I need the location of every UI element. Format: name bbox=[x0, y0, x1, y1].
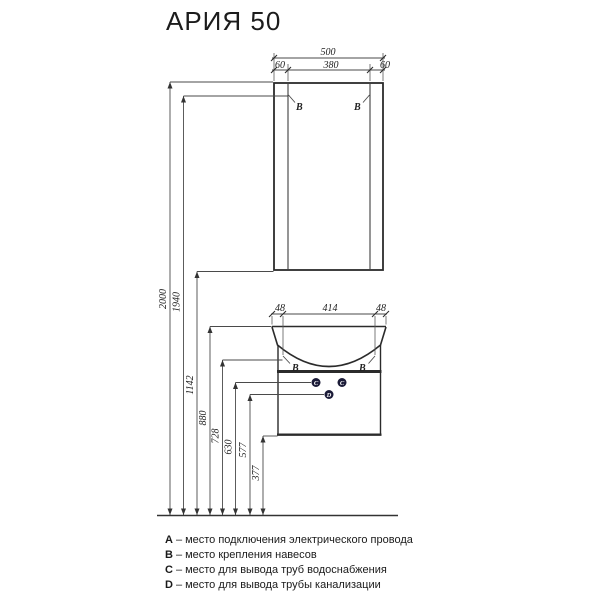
drain-marker-label: D bbox=[326, 392, 332, 399]
dimension-drawing: 500 60 380 60 B B bbox=[0, 0, 600, 600]
water-marker-label: C bbox=[314, 380, 319, 387]
legend-key: A bbox=[165, 534, 173, 546]
mirror-width-dimensions: 500 60 380 60 bbox=[271, 47, 390, 81]
dim-vanity-left: 48 bbox=[275, 303, 285, 314]
legend-item: D–место для вывода трубы канализации bbox=[165, 578, 416, 593]
hanger-marker-label: B bbox=[295, 102, 303, 113]
height-dim-630: 630 bbox=[224, 440, 235, 455]
legend-separator: – bbox=[176, 549, 182, 561]
legend-key: D bbox=[165, 579, 173, 591]
legend-separator: – bbox=[176, 534, 182, 546]
water-marker-label: C bbox=[340, 380, 345, 387]
vanity-width-dimensions: 48 414 48 bbox=[269, 303, 389, 355]
height-dim-1940: 1940 bbox=[172, 292, 183, 312]
legend-separator: – bbox=[176, 579, 182, 591]
legend-item: A–место подключения электрического прово… bbox=[165, 533, 416, 548]
dim-mirror-center: 380 bbox=[323, 60, 339, 71]
hanger-marker-label: B bbox=[353, 102, 361, 113]
height-dim-1142: 1142 bbox=[185, 375, 196, 394]
legend: A–место подключения электрического прово… bbox=[165, 533, 416, 593]
dim-mirror-left: 60 bbox=[275, 60, 285, 71]
legend-separator: – bbox=[176, 564, 182, 576]
legend-label: место для вывода труб водоснабжения bbox=[185, 564, 387, 576]
legend-item: B–место крепления навесов bbox=[165, 548, 416, 563]
dim-vanity-right: 48 bbox=[376, 303, 386, 314]
pipe-markers: C C D bbox=[312, 378, 347, 399]
height-dim-880: 880 bbox=[198, 411, 209, 426]
legend-key: B bbox=[165, 549, 173, 561]
vanity-cabinet bbox=[272, 327, 386, 435]
height-dim-377: 377 bbox=[251, 465, 262, 482]
legend-label: место крепления навесов bbox=[185, 549, 317, 561]
legend-label: место для вывода трубы канализации bbox=[185, 579, 381, 591]
height-dim-577: 577 bbox=[238, 442, 249, 458]
dim-mirror-total: 500 bbox=[321, 47, 336, 58]
legend-label: место подключения электрического провода bbox=[185, 534, 413, 546]
dim-vanity-center: 414 bbox=[323, 303, 338, 314]
height-dimensions: 2000 1940 1142 880 728 630 577 bbox=[158, 82, 324, 515]
hanger-marker-label: B bbox=[291, 363, 299, 374]
dim-mirror-right: 60 bbox=[380, 60, 390, 71]
height-dim-728: 728 bbox=[211, 429, 222, 444]
hanger-marker-label: B bbox=[358, 363, 366, 374]
mirror-hanger-markers: B B bbox=[289, 95, 370, 113]
height-dim-2000: 2000 bbox=[158, 289, 169, 309]
mirror-cabinet bbox=[274, 83, 383, 270]
technical-drawing-page: АРИЯ 50 500 60 bbox=[0, 0, 600, 600]
legend-key: C bbox=[165, 564, 173, 576]
legend-item: C–место для вывода труб водоснабжения bbox=[165, 563, 416, 578]
